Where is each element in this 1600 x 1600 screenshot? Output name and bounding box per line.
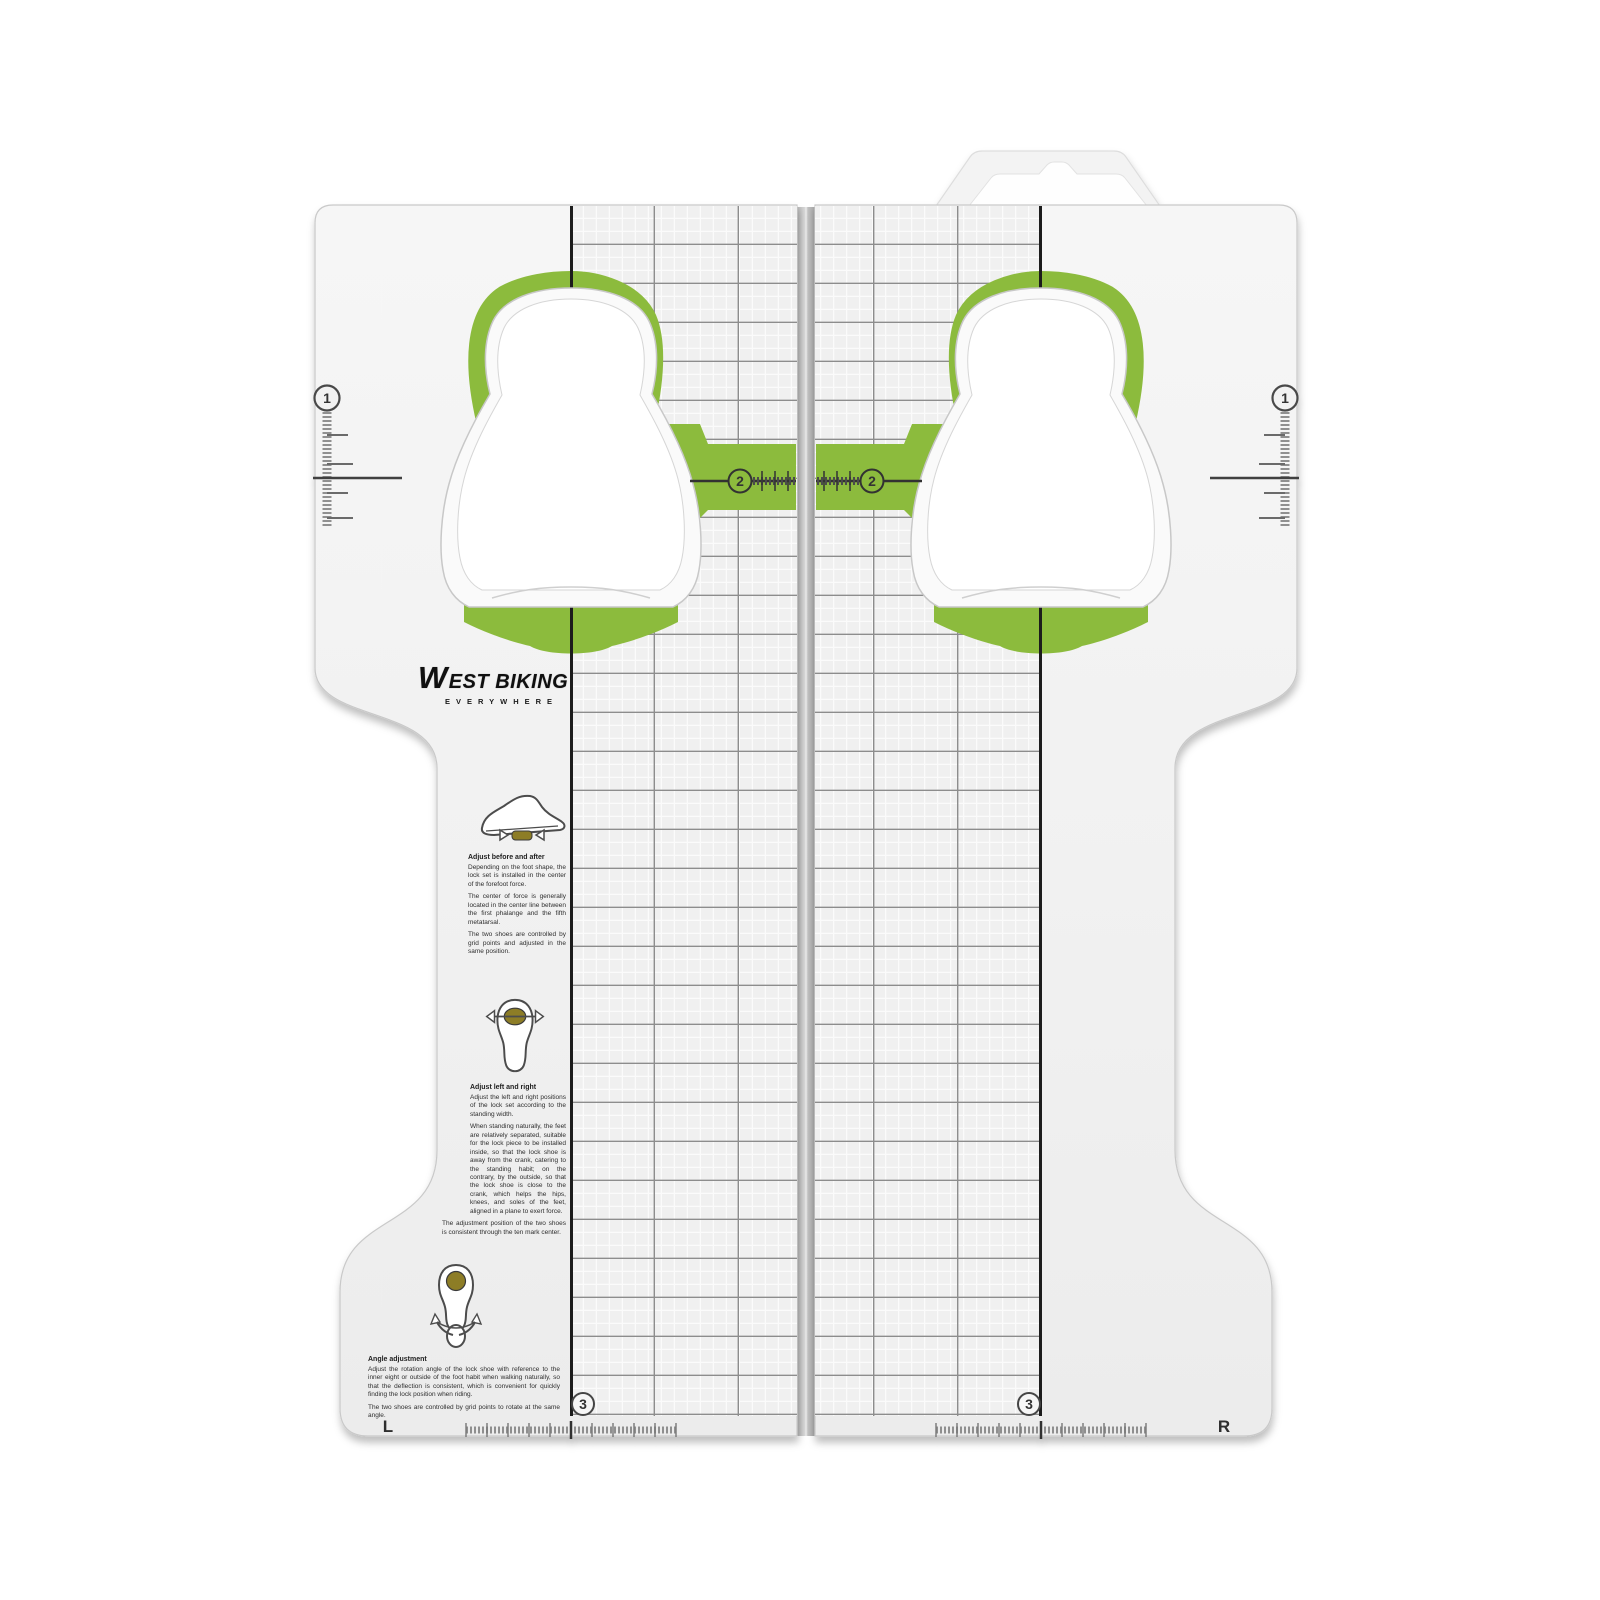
sole-width-adjust-icon — [484, 996, 546, 1080]
instruction-paragraph: The two shoes are controlled by grid poi… — [468, 931, 566, 956]
instruction-paragraph: The two shoes are controlled by grid poi… — [368, 1404, 560, 1421]
instruction-block-angle: Angle adjustment Adjust the rotation ang… — [368, 1262, 560, 1425]
marker-1-label-right: 1 — [1281, 390, 1289, 406]
instruction-paragraph: The center of force is generally located… — [468, 893, 566, 927]
brand-tagline: EVERYWHERE — [418, 697, 578, 706]
marker-3-label-left: 3 — [579, 1396, 587, 1412]
marker-2-label-left: 2 — [736, 473, 744, 489]
marker-3-label-right: 3 — [1025, 1396, 1033, 1412]
cleat-tool-graphic: 1 1 2 2 3 3 L R — [0, 0, 1600, 1600]
instruction-paragraph: The adjustment position of the two shoes… — [442, 1220, 566, 1237]
right-shoe-label: R — [1218, 1417, 1230, 1436]
instruction-paragraph: Depending on the foot shape, the lock se… — [468, 864, 566, 889]
sole-angle-adjust-icon — [427, 1262, 485, 1352]
hang-tab — [936, 151, 1160, 206]
instruction-block-fore-aft: Adjust before and after Depending on the… — [468, 786, 566, 960]
instruction-heading: Adjust left and right — [470, 1084, 566, 1091]
tool-right-half — [815, 205, 1299, 1439]
brand-name: WEST BIKING — [418, 660, 578, 696]
brand-logo: WEST BIKING EVERYWHERE — [418, 660, 578, 706]
product-photo-cleat-alignment-tool: 1 1 2 2 3 3 L R WEST BIKING EVERYWHERE A… — [0, 0, 1600, 1600]
instruction-block-left-right: Adjust left and right Adjust the left an… — [470, 996, 566, 1241]
marker-2-label-right: 2 — [868, 473, 876, 489]
shoe-side-view-icon — [472, 786, 568, 850]
brand-initial: W — [418, 660, 448, 695]
instruction-heading: Adjust before and after — [468, 854, 566, 861]
marker-1-label-left: 1 — [323, 390, 331, 406]
instruction-paragraph: Adjust the left and right positions of t… — [470, 1094, 566, 1119]
instruction-paragraph: Adjust the rotation angle of the lock sh… — [368, 1366, 560, 1400]
instruction-paragraph: When standing naturally, the feet are re… — [470, 1123, 566, 1216]
instruction-heading: Angle adjustment — [368, 1356, 560, 1363]
